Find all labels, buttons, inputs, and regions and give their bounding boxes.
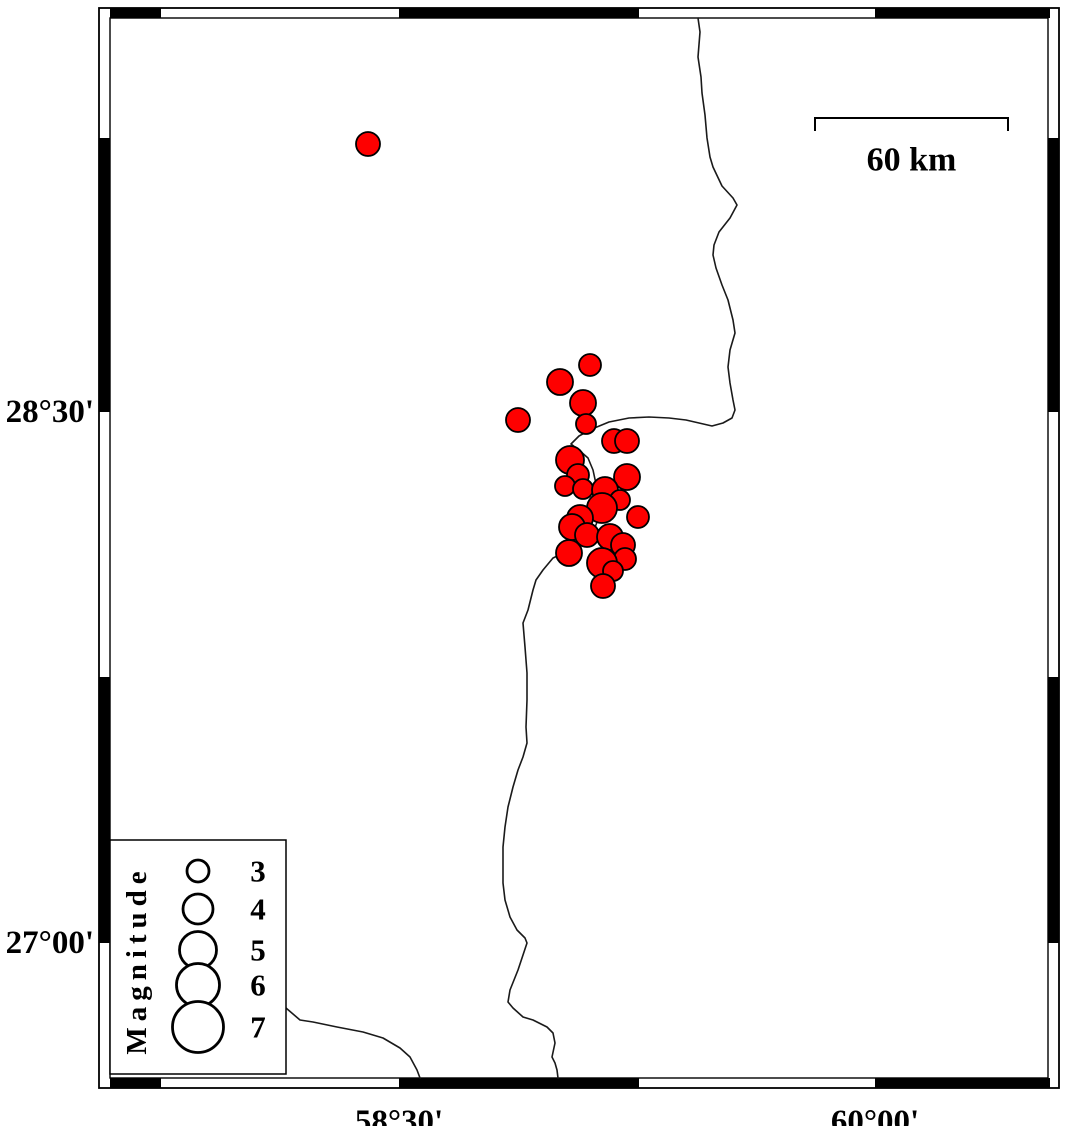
legend-value: 7 [250, 1010, 266, 1045]
earthquake-marker [579, 354, 601, 376]
earthquake-marker [591, 574, 615, 598]
legend-title: Magnitude [121, 865, 153, 1054]
frame-tick-segment-top [875, 8, 1050, 18]
earthquake-marker [555, 476, 575, 496]
frame-tick-segment-left [99, 138, 110, 412]
latitude-label: 28°30' [6, 394, 94, 430]
frame-tick-segment-right [1048, 138, 1059, 412]
frame-tick-segment-top [399, 8, 639, 18]
legend-circle [187, 860, 209, 882]
frame-tick-segment-bottom [875, 1078, 1050, 1088]
earthquake-marker [576, 414, 596, 434]
frame-tick-segment-left [99, 677, 110, 943]
longitude-label: 60°00' [831, 1104, 919, 1126]
seismicity-map-page: 60 kmMagnitude3456728°30'27°00'58°30'60°… [0, 0, 1066, 1126]
frame-tick-segment-top [110, 8, 161, 18]
legend-value: 4 [250, 892, 266, 927]
earthquake-marker [556, 540, 582, 566]
earthquake-marker [547, 369, 573, 395]
earthquake-marker [573, 479, 593, 499]
frame-tick-segment-bottom [110, 1078, 161, 1088]
legend-value: 5 [250, 933, 266, 968]
legend-circle [173, 1002, 224, 1053]
earthquake-marker [506, 408, 530, 432]
legend-value: 3 [250, 854, 266, 889]
legend-circle [177, 964, 220, 1007]
earthquake-marker [615, 429, 639, 453]
scale-bar [815, 118, 1008, 131]
legend-circle [183, 894, 213, 924]
earthquake-marker [627, 506, 649, 528]
longitude-label: 58°30' [355, 1104, 443, 1126]
frame-tick-segment-right [1048, 677, 1059, 943]
latitude-label: 27°00' [6, 925, 94, 961]
scale-bar-label: 60 km [867, 142, 957, 179]
earthquake-marker [570, 390, 596, 416]
frame-tick-segment-bottom [399, 1078, 639, 1088]
earthquake-marker [356, 132, 380, 156]
seismicity-map: 60 kmMagnitude3456728°30'27°00'58°30'60°… [0, 0, 1066, 1126]
legend-value: 6 [250, 968, 266, 1003]
coastline-branch [286, 1008, 420, 1078]
